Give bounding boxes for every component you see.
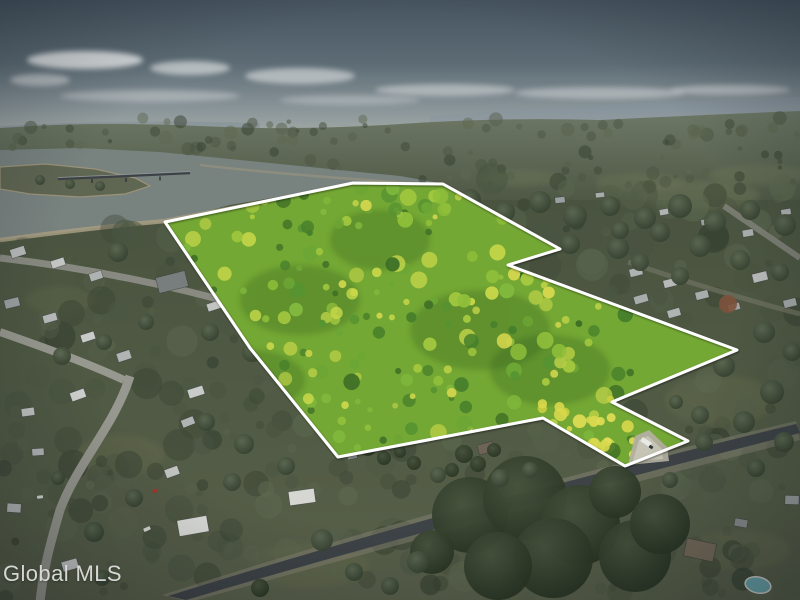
- vignette: [0, 0, 800, 600]
- watermark-global-mls: Global MLS: [3, 562, 122, 586]
- scene-canvas: [0, 0, 800, 600]
- aerial-photo: Global MLS: [0, 0, 800, 600]
